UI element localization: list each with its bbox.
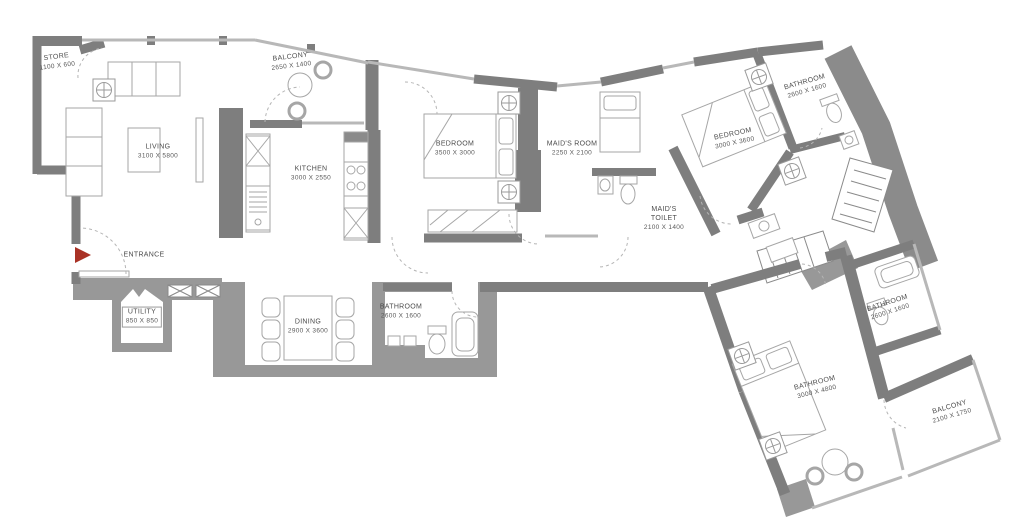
double-bed-icon [424,114,516,178]
sofa-icon [66,62,180,196]
dining-table-icon [262,296,354,361]
toilet-icon [820,94,846,126]
toilet-icon [428,326,446,354]
bathtub-icon [874,255,921,289]
entrance-door-leaf [79,271,129,277]
toilet-icon [867,298,892,327]
balcony-table-icon [288,62,331,119]
floor-plan: STORE 1100 X 600 LIVING 3100 X 5800 BALC… [0,0,1024,530]
toilet-icon [598,176,637,204]
double-bed-icon [682,81,786,167]
round-table-icon [807,449,862,484]
window-seat-icon [428,210,517,232]
tv-unit-icon [196,118,203,182]
coffee-table-icon [128,128,160,172]
floor-plan-drawing [0,0,1024,530]
kitchen-counter-icon [246,132,368,240]
single-bed-icon [600,92,640,152]
bathtub-icon [452,312,478,356]
entrance-arrow-icon [75,247,91,263]
